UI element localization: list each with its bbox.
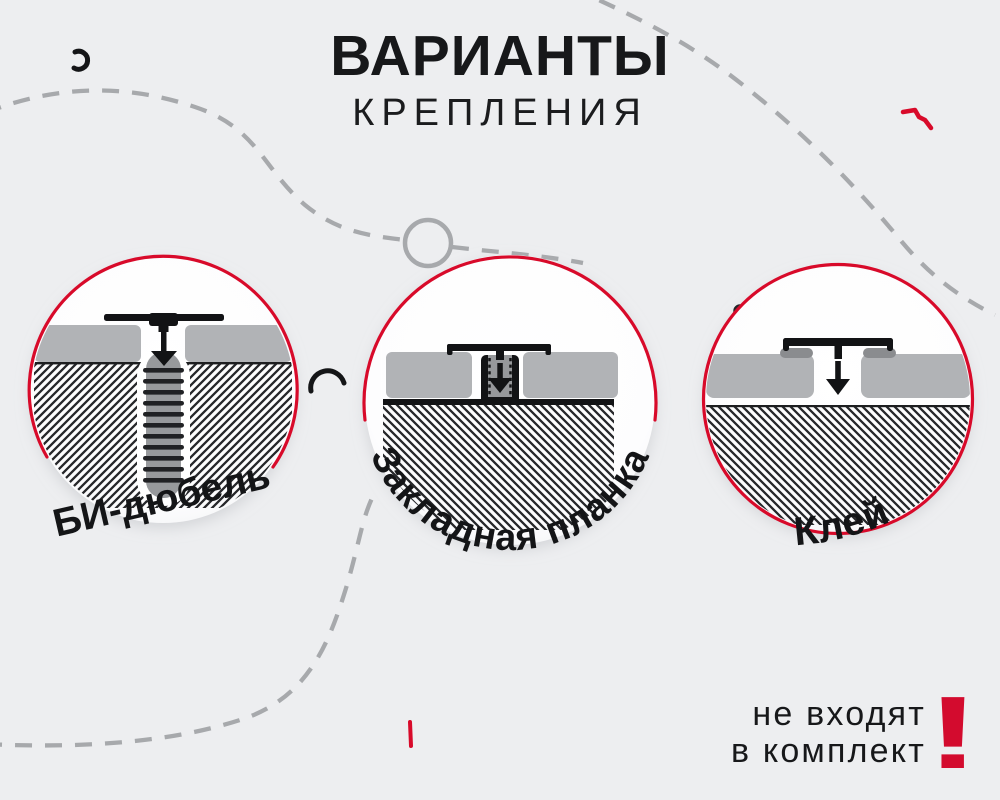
subfloor-top-line bbox=[706, 405, 971, 407]
arc-doodle-center bbox=[311, 371, 344, 391]
red-tick-doodle bbox=[410, 722, 411, 746]
floor-panel-left bbox=[706, 354, 814, 398]
floor-panel-left bbox=[386, 352, 472, 398]
mounting-option-embedded-plank: Закладная планка bbox=[362, 255, 658, 559]
floor-panel-right bbox=[523, 352, 618, 398]
note-line-1: не входят bbox=[731, 696, 926, 733]
floor-panel-right bbox=[185, 325, 292, 362]
not-included-note: не входят в комплект bbox=[731, 696, 926, 770]
mounting-option-bi-dowel: БИ-дюбель bbox=[29, 256, 297, 545]
ring-doodle bbox=[405, 220, 451, 266]
note-line-2: в комплект bbox=[731, 733, 926, 770]
header: ВАРИАНТЫ КРЕПЛЕНИЯ bbox=[0, 28, 1000, 132]
exclamation-icon: ! bbox=[926, 675, 979, 790]
floor-panel-left bbox=[34, 325, 141, 362]
floor-panel-right bbox=[861, 354, 971, 398]
page-subtitle: КРЕПЛЕНИЯ bbox=[0, 94, 1000, 132]
infographic-canvas: БИ-дюбель bbox=[0, 0, 1000, 800]
page-title: ВАРИАНТЫ bbox=[0, 28, 1000, 85]
mounting-option-glue: Клей bbox=[704, 265, 973, 555]
